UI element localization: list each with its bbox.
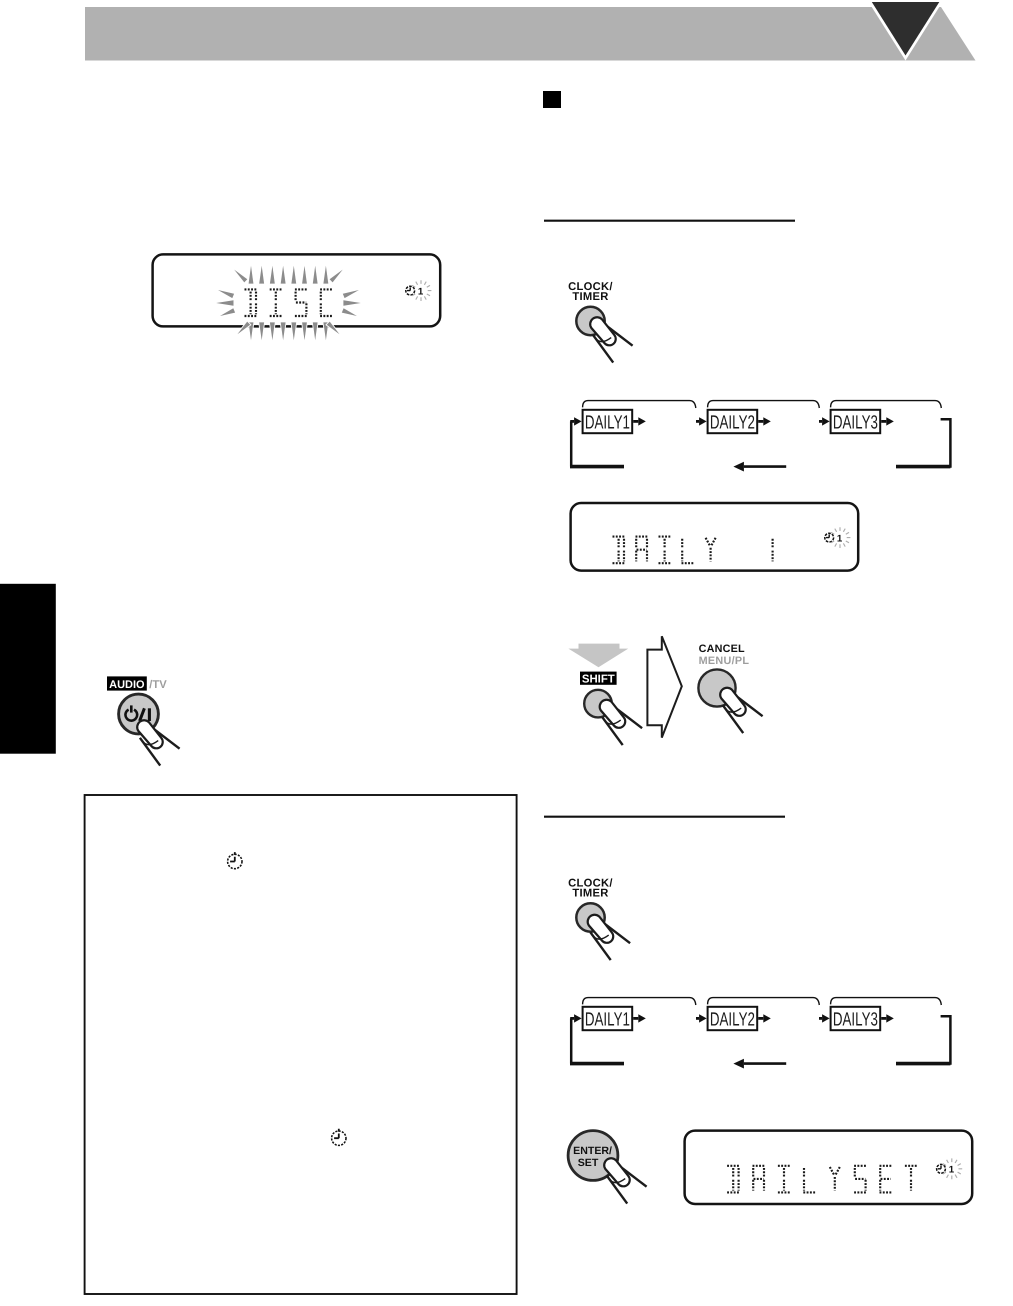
svg-text:MENU/PL: MENU/PL (699, 655, 750, 667)
svg-text:DAILY3: DAILY3 (833, 1009, 878, 1030)
svg-text:1: 1 (418, 287, 424, 298)
svg-text:SHIFT: SHIFT (582, 674, 615, 686)
svg-text:DAILY1: DAILY1 (585, 412, 630, 433)
svg-text:/TV: /TV (149, 679, 167, 691)
svg-text:CANCEL: CANCEL (699, 643, 745, 655)
svg-text:AUDIO: AUDIO (109, 679, 145, 691)
svg-text:ENTER/: ENTER/ (573, 1145, 612, 1157)
svg-text:SET: SET (578, 1157, 599, 1169)
svg-text:1: 1 (837, 534, 843, 545)
svg-text:1: 1 (949, 1165, 955, 1176)
svg-text:DAILY1: DAILY1 (585, 1009, 630, 1030)
svg-text:TIMER: TIMER (572, 888, 608, 900)
svg-text:DAILY3: DAILY3 (833, 412, 878, 433)
svg-text:DAILY2: DAILY2 (710, 412, 755, 433)
svg-text:TIMER: TIMER (572, 291, 608, 303)
svg-text:DAILY2: DAILY2 (710, 1009, 755, 1030)
